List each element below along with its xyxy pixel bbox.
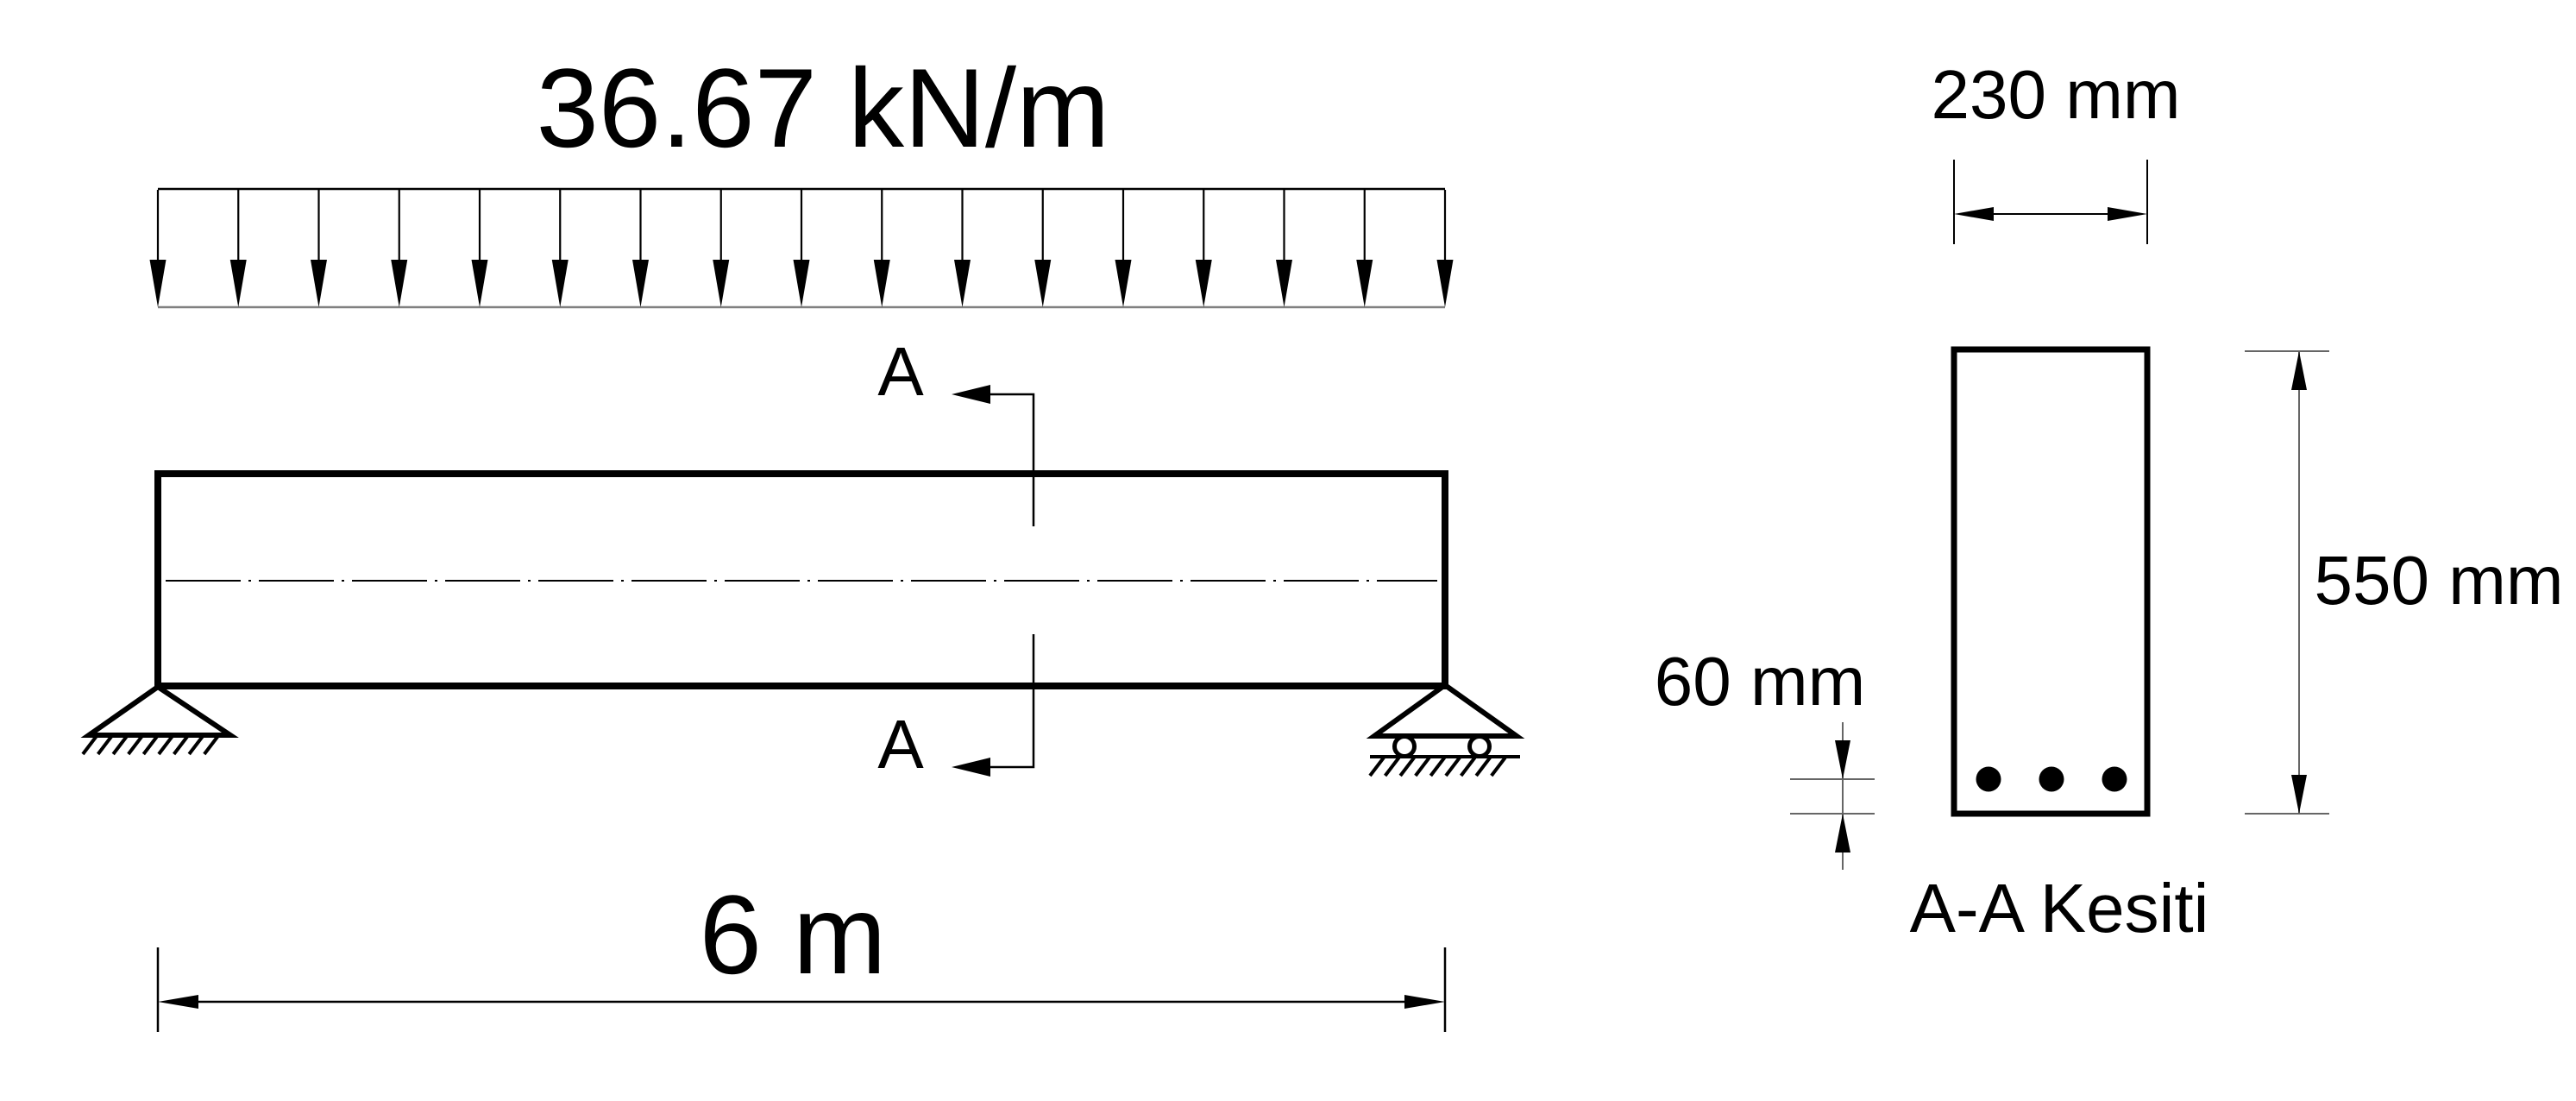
load-arrowhead-icon	[713, 260, 729, 307]
rebar-dot-icon	[2039, 767, 2064, 792]
hatch-stroke-icon	[98, 736, 112, 754]
hatch-stroke-icon	[83, 736, 97, 754]
cover-dimension: 60 mm	[1655, 643, 1875, 870]
distributed-load-label: 36.67 kN/m	[537, 45, 1110, 171]
hatch-stroke-icon	[129, 736, 142, 754]
load-arrow-group	[150, 190, 1454, 307]
dimension-arrow-right-icon	[1404, 995, 1445, 1009]
section-arrow-bottom-icon	[952, 758, 990, 777]
height-dimension: 550 mm	[2245, 351, 2563, 814]
distributed-load	[150, 189, 1454, 307]
height-dimension-label: 550 mm	[2315, 542, 2564, 619]
section-figure: 230 mm 550 mm 60 mm	[1655, 56, 2564, 947]
span-dimension: 6 m	[158, 871, 1445, 1032]
hatch-stroke-icon	[1385, 758, 1399, 776]
load-arrowhead-icon	[472, 260, 488, 307]
pin-support-triangle-icon	[89, 687, 230, 735]
load-arrowhead-icon	[391, 260, 407, 307]
load-arrowhead-icon	[954, 260, 971, 307]
roller-wheel-icon	[1395, 737, 1415, 757]
rebar-dot-icon	[2102, 767, 2127, 792]
hatch-stroke-icon	[159, 736, 173, 754]
section-outline	[1954, 349, 2147, 814]
load-arrowhead-icon	[1196, 260, 1212, 307]
engineering-drawing: 36.67 kN/m A A	[0, 0, 2576, 1101]
roller-support	[1370, 685, 1520, 776]
rebar-dot-icon	[1976, 767, 2001, 792]
hatch-stroke-icon	[1461, 758, 1475, 776]
beam-figure: 36.67 kN/m A A	[83, 45, 1520, 1032]
span-dimension-label: 6 m	[700, 871, 887, 997]
dimension-arrow-up-icon	[1835, 814, 1850, 852]
hatch-stroke-icon	[1416, 758, 1429, 776]
dimension-arrow-left-icon	[1954, 207, 1994, 221]
load-arrowhead-icon	[552, 260, 569, 307]
hatch-stroke-icon	[1476, 758, 1490, 776]
load-arrowhead-icon	[1276, 260, 1292, 307]
cover-dimension-label: 60 mm	[1655, 643, 1866, 720]
hatch-stroke-icon	[1446, 758, 1460, 776]
roller-support-hatching	[1370, 758, 1505, 776]
load-arrowhead-icon	[874, 260, 890, 307]
hatch-stroke-icon	[1430, 758, 1444, 776]
load-arrowhead-icon	[1437, 260, 1454, 307]
width-dimension-label: 230 mm	[1932, 56, 2181, 133]
load-arrowhead-icon	[1034, 260, 1051, 307]
dimension-arrow-right-icon	[2108, 207, 2147, 221]
beam-and-section-diagram: 36.67 kN/m A A	[0, 0, 2576, 1101]
section-letter-bottom: A	[877, 706, 924, 783]
pin-support-hatching	[83, 736, 218, 754]
hatch-stroke-icon	[1492, 758, 1505, 776]
hatch-stroke-icon	[1370, 758, 1384, 776]
section-letter-top: A	[877, 333, 924, 410]
hatch-stroke-icon	[143, 736, 157, 754]
load-arrowhead-icon	[1115, 260, 1132, 307]
dimension-arrow-up-icon	[2291, 351, 2307, 390]
load-arrowhead-icon	[794, 260, 810, 307]
hatch-stroke-icon	[1400, 758, 1414, 776]
section-arrow-top-icon	[952, 385, 990, 404]
roller-wheel-icon	[1470, 737, 1490, 757]
hatch-stroke-icon	[174, 736, 188, 754]
roller-support-triangle-icon	[1374, 685, 1517, 736]
width-dimension: 230 mm	[1932, 56, 2181, 244]
dimension-arrow-left-icon	[158, 995, 198, 1009]
section-caption: A-A Kesiti	[1910, 870, 2209, 947]
load-arrowhead-icon	[150, 260, 166, 307]
dimension-arrow-down-icon	[1835, 740, 1850, 779]
load-arrowhead-icon	[1356, 260, 1373, 307]
dimension-arrow-down-icon	[2291, 775, 2307, 814]
load-arrowhead-icon	[230, 260, 247, 307]
load-arrowhead-icon	[632, 260, 649, 307]
pin-support	[83, 687, 230, 754]
load-arrowhead-icon	[311, 260, 327, 307]
hatch-stroke-icon	[189, 736, 203, 754]
hatch-stroke-icon	[113, 736, 127, 754]
hatch-stroke-icon	[204, 736, 218, 754]
